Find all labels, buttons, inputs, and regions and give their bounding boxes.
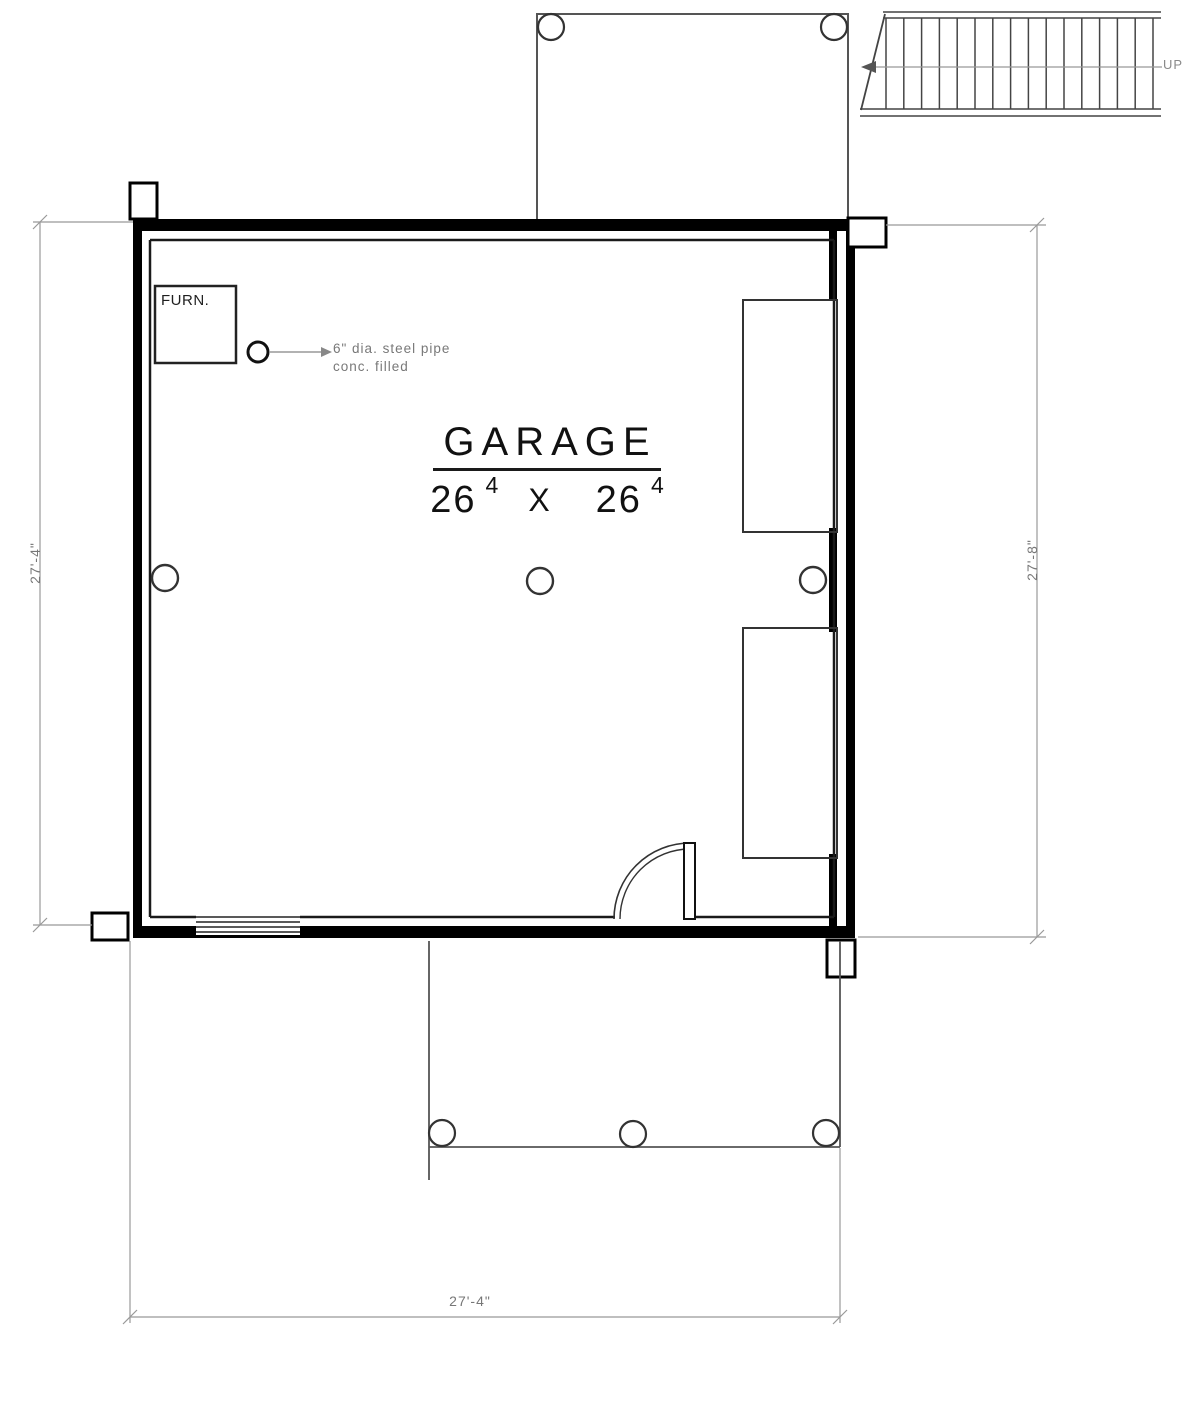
corner-post-top-right	[848, 218, 886, 247]
stair-top-stringer	[883, 12, 1161, 18]
size-separator: X	[528, 482, 549, 519]
room-size: 26 4 X 26 4	[380, 478, 714, 522]
storage-area-lower	[743, 628, 837, 858]
furnace-label: FURN.	[161, 292, 209, 309]
dimension-label-left: 27'-4"	[27, 513, 43, 613]
door-leaf	[684, 843, 695, 919]
floor-plan-canvas: GARAGE 26 4 X 26 4 FURN. 6" dia. steel p…	[0, 0, 1200, 1409]
dimension-label-right: 27'-8"	[1024, 510, 1040, 610]
dimension-label-bottom: 27'-4"	[400, 1293, 540, 1309]
garage-right-wall	[846, 219, 855, 938]
steel-pipe-column	[248, 342, 268, 362]
garage-top-wall	[133, 219, 855, 231]
door-swing-arc-inner	[620, 849, 690, 919]
storage-area-upper	[743, 300, 837, 532]
upper-landing-post-right	[821, 14, 847, 40]
dimension-line-right	[858, 225, 1046, 937]
stairs-up-label: UP	[1163, 57, 1183, 72]
upper-landing-outline	[537, 14, 848, 219]
pipe-note-line1: 6" dia. steel pipe	[333, 340, 450, 358]
size-left-inches: 4	[486, 472, 499, 499]
stair-break-line	[861, 14, 885, 110]
stair-bottom-stringer	[860, 109, 1161, 116]
pipe-leader-arrowhead	[321, 347, 332, 357]
interior-post-right	[800, 567, 826, 593]
dimension-line-left	[33, 222, 133, 925]
deck-post-center	[620, 1121, 646, 1147]
deck-post-left	[429, 1120, 455, 1146]
dimension-line-bottom	[130, 941, 840, 1323]
room-title-text: GARAGE	[433, 420, 660, 471]
garage-left-wall	[133, 219, 142, 938]
size-right-inches: 4	[651, 472, 664, 499]
interior-post-left	[152, 565, 178, 591]
room-title: GARAGE	[380, 420, 714, 471]
corner-post-bottom-left	[92, 913, 128, 940]
size-left-feet: 26	[430, 478, 476, 522]
upper-landing-post-left	[538, 14, 564, 40]
door-swing-arc-outer	[614, 843, 690, 919]
pipe-note: 6" dia. steel pipe conc. filled	[333, 340, 450, 376]
interior-wall-lines	[150, 240, 834, 917]
floor-plan-drawing	[0, 0, 1200, 1409]
size-right-feet: 26	[596, 478, 642, 522]
corner-post-bottom-right	[827, 940, 855, 977]
stair-treads	[886, 18, 1153, 109]
stair-direction-arrowhead	[861, 61, 876, 73]
corner-post-top-left	[130, 183, 157, 219]
interior-post-center	[527, 568, 553, 594]
pipe-note-line2: conc. filled	[333, 358, 450, 376]
deck-post-right	[813, 1120, 839, 1146]
